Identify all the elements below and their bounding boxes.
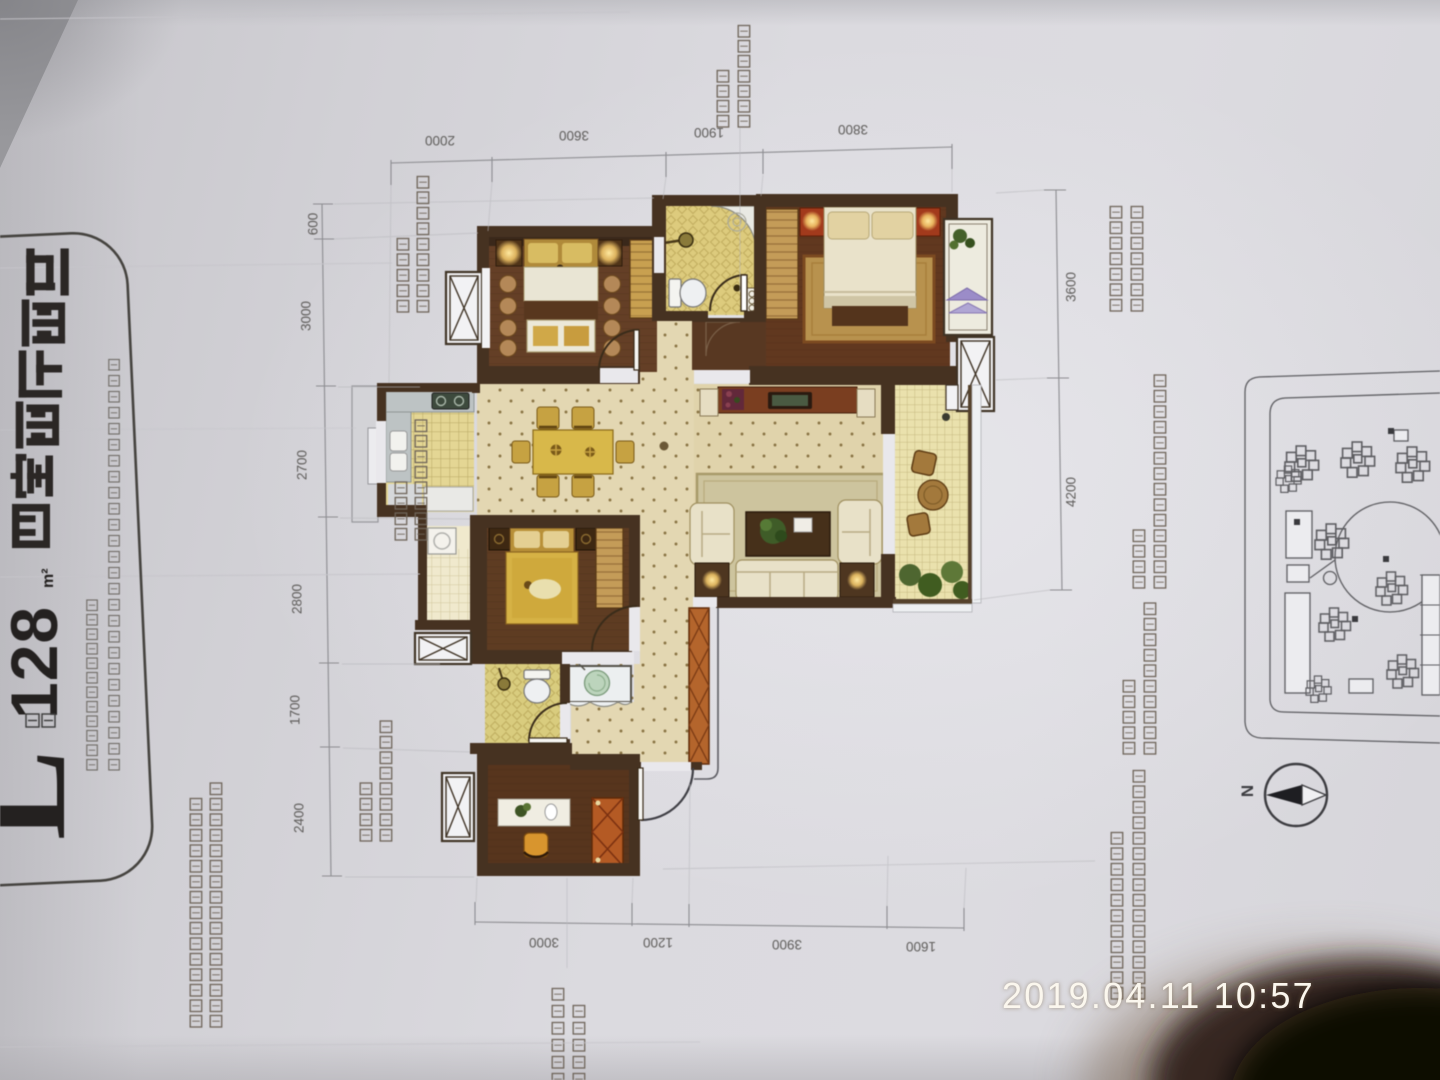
svg-text:2019.04.11 10:57: 2019.04.11 10:57 [1002, 975, 1315, 1016]
